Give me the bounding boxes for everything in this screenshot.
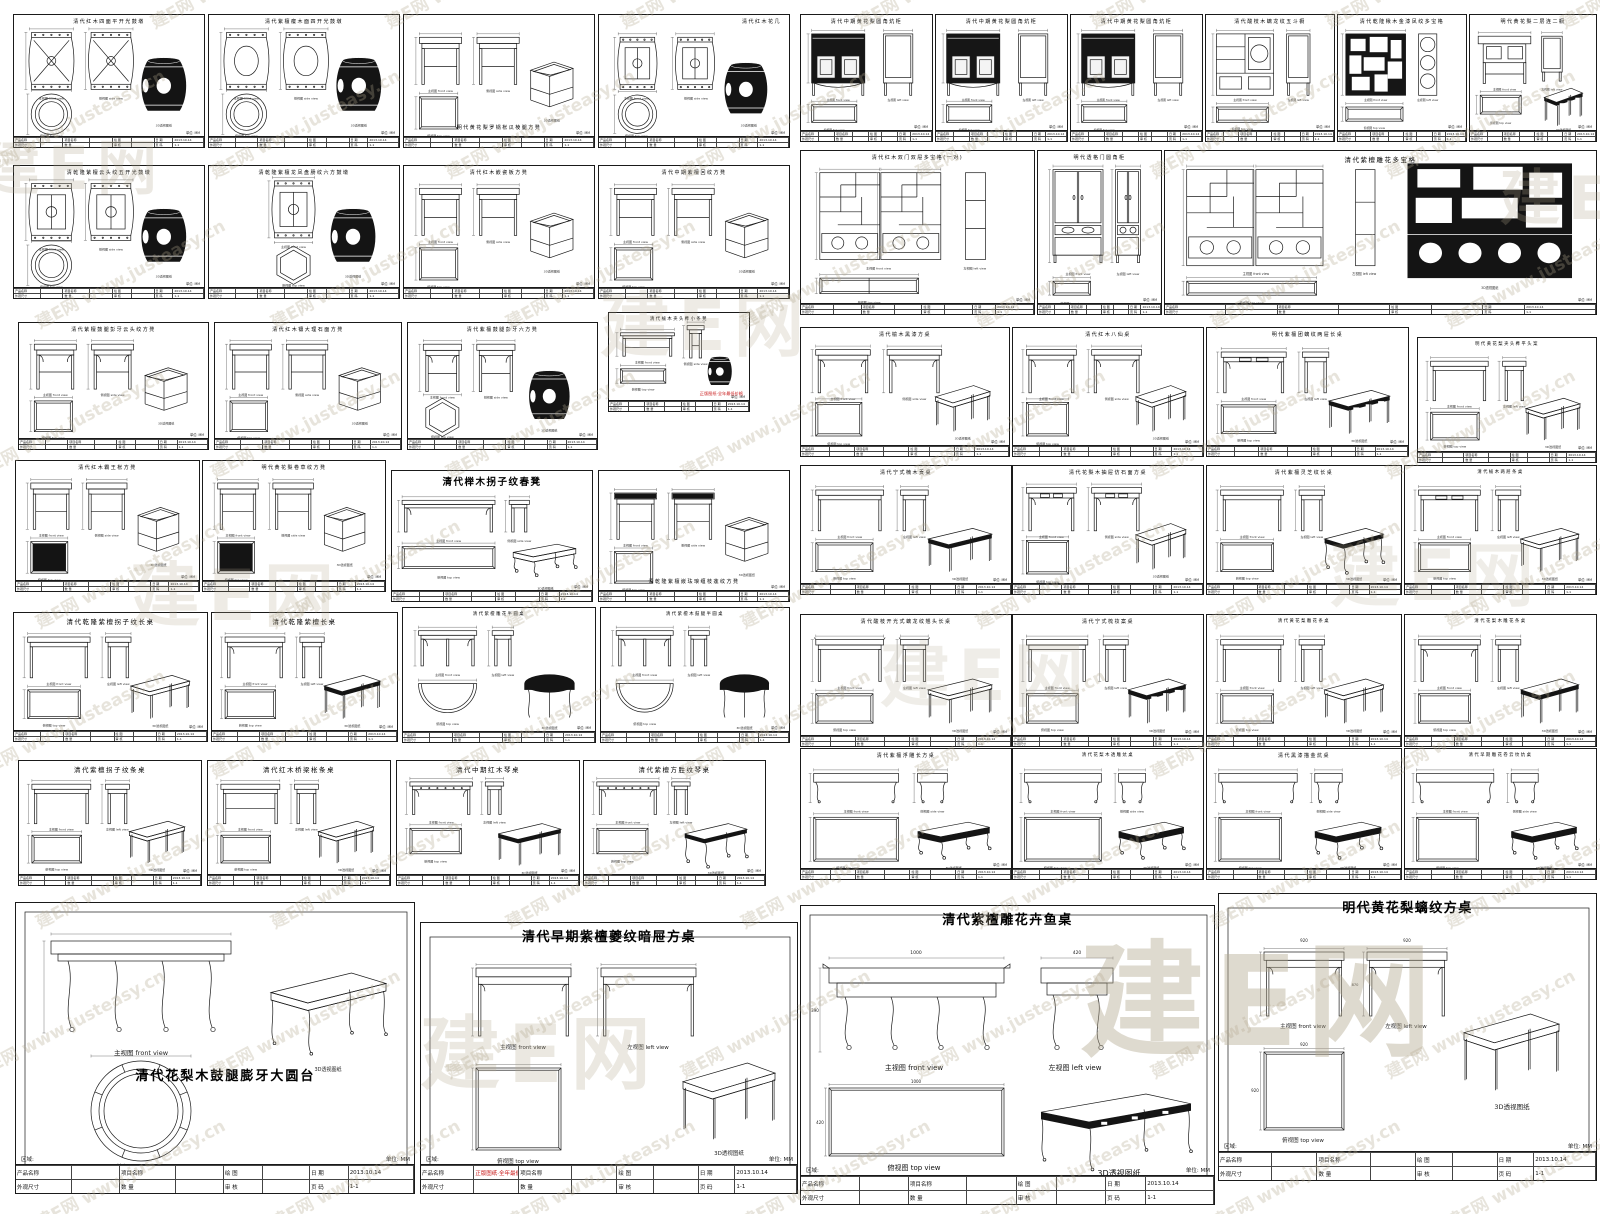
titleblock-cell (895, 309, 923, 314)
drawing-sheet: 清代花梨木透雕炕桌主视图 front view侧视图 side view俯视图 … (1012, 748, 1204, 880)
titleblock-cell (1489, 457, 1510, 462)
svg-text:主视图 front view: 主视图 front view (1246, 808, 1271, 813)
titleblock-cell: 审 核 (909, 451, 930, 456)
titleblock: 产品名称项目名称绘 图日 期2013.10.14外观尺寸数 量审 核页 码1-1 (207, 874, 391, 886)
drawing-sheet: 清代榆木夹头榫小条凳主视图 front view侧视图 side view俯视图… (608, 312, 750, 412)
svg-text:左视图 left view: 左视图 left view (1301, 685, 1324, 690)
svg-text:主视图 front view: 主视图 front view (1493, 88, 1517, 92)
titleblock-cell (860, 1176, 909, 1190)
titleblock-cell: 外观尺寸 (801, 309, 834, 314)
titleblock-cell: 数 量 (250, 586, 276, 591)
titleblock-cell: 页 码 (740, 737, 759, 742)
titleblock-cell (967, 1190, 1016, 1204)
titleblock-cell (1272, 1166, 1317, 1180)
unit-label: 单位: MM (1185, 862, 1199, 867)
svg-text:主视图 front view: 主视图 front view (1050, 808, 1075, 813)
titleblock-cell: 1-1 (1565, 589, 1596, 594)
titleblock-cell (1055, 309, 1070, 314)
titleblock-cell: 数 量 (120, 1179, 176, 1193)
titleblock-cell: 数 量 (519, 1179, 572, 1193)
titleblock-cell (1131, 451, 1154, 456)
titleblock-cell (522, 293, 545, 298)
titleblock: 产品名称项目名称绘 图日 期2013.10.14外观尺寸数 量审 核页 码1-1 (1070, 130, 1203, 142)
svg-text:俯视图 top view: 俯视图 top view (833, 575, 856, 580)
titleblock: 产品名称项目名称绘 图日 期2013.10.14外观尺寸数 量审 核页 码1-1 (1469, 130, 1597, 142)
unit-label: 单位: MM (379, 724, 393, 729)
svg-text:3D透视图纸: 3D透视图纸 (1153, 574, 1169, 579)
titleblock-cell: 数 量 (1239, 136, 1257, 141)
titleblock-cell: 项目名称 (519, 1165, 572, 1179)
svg-text:左视图 left view: 左视图 left view (888, 98, 910, 102)
titleblock-cell (834, 309, 862, 314)
titleblock-cell (1234, 874, 1257, 879)
titleblock-row: 外观尺寸数 量审 核页 码1-1 (1013, 589, 1203, 594)
titleblock-cell: 1-1 (977, 874, 1011, 879)
drawing-sheet: 明代黄花梨二层连二橱主视图 front view左视图 left view俯视图… (1469, 14, 1597, 142)
titleblock-cell: 1-1 (759, 737, 789, 742)
titleblock-cell (480, 293, 503, 298)
titleblock-cell: 外观尺寸 (1418, 457, 1443, 462)
titleblock-cell: 审 核 (1102, 309, 1114, 314)
titleblock-row: 外观尺寸数 量审 核页 码1-1 (1405, 589, 1596, 594)
titleblock-cell: 审 核 (682, 406, 696, 411)
sheet-title: 清代红木嵌瓷板方凳 (404, 169, 594, 176)
titleblock: 产品名称项目名称绘 图日 期2013.10.14外观尺寸数 量审 核页 码1-1 (800, 735, 1012, 747)
titleblock-cell: 审 核 (699, 737, 718, 742)
furniture-drawing: 920920870主视图 front view左视图 left view9209… (1219, 894, 1598, 1154)
titleblock-cell: 外观尺寸 (19, 444, 46, 449)
titleblock-cell: 审 核 (1139, 136, 1152, 141)
titleblock-cell: 1-1 (367, 736, 397, 741)
titleblock-row: 外观尺寸数 量审 核页 码1-1 (1207, 741, 1401, 746)
titleblock-cell (627, 737, 650, 742)
sheet-title: 清乾隆紫檀云头纹五开光鼓墩 (14, 169, 204, 176)
svg-text:主视图 front view: 主视图 front view (430, 395, 455, 400)
sheet-title: 清乾隆紫檀龙凤盘肠纹六方鼓墩 (209, 169, 399, 176)
titleblock-cell (1520, 136, 1535, 141)
svg-text:俯视图 top view: 俯视图 top view (1236, 727, 1259, 732)
titleblock-cell: 外观尺寸 (212, 736, 238, 741)
titleblock-cell: 数 量 (648, 293, 675, 298)
titleblock-cell: 数 量 (1062, 451, 1089, 456)
unit-label: 单位: MM (579, 432, 593, 437)
svg-text:侧视图 side view: 侧视图 side view (507, 538, 532, 543)
titleblock-cell (1226, 309, 1277, 314)
unit-label: 单位: MM (183, 868, 197, 873)
titleblock-cell: 1-1 (727, 406, 749, 411)
titleblock-cell (285, 142, 308, 147)
titleblock-cell (988, 136, 1004, 141)
titleblock-cell: 外观尺寸 (609, 406, 629, 411)
titleblock-cell: 绘 图 (1017, 1176, 1057, 1190)
titleblock-cell: 外观尺寸 (1206, 136, 1224, 141)
titleblock: 产品名称项目名称绘 图日 期2013.10.14外观尺寸数 量审 核页 码1-1 (600, 731, 790, 743)
svg-text:3D透视图纸: 3D透视图纸 (150, 562, 166, 567)
furniture-drawing: 主视图 front view左视图 left view俯视图 top view (801, 151, 1036, 306)
titleblock-cell (1089, 874, 1112, 879)
svg-text:主视图 front view: 主视图 front view (1045, 685, 1070, 690)
sheet-title: 清代紫檀浮雕长方桌 (801, 752, 1011, 759)
titleblock-cell (629, 406, 646, 411)
titleblock-cell: 外观尺寸 (1207, 589, 1234, 594)
unit-label: 单位: MM (1568, 1142, 1592, 1150)
titleblock-cell (967, 1176, 1016, 1190)
furniture-drawing: 主视图 front view侧视图 side view俯视图 top view3… (1405, 749, 1598, 871)
svg-text:左视图 left view: 左视图 left view (107, 681, 130, 686)
svg-text:俯视图 top view: 俯视图 top view (1237, 437, 1260, 442)
titleblock-cell (1285, 589, 1308, 594)
titleblock: 产品名称项目名称绘 图日 期2013.10.14外观尺寸数 量审 核页 码1-1 (202, 580, 386, 592)
titleblock-cell: 1-1 (173, 293, 204, 298)
titleblock-cell (1528, 457, 1549, 462)
svg-text:俯视图 top view: 俯视图 top view (1433, 727, 1456, 732)
titleblock-cell (853, 136, 869, 141)
unit-label: 单位: MM (181, 574, 195, 579)
svg-text:主视图 front view: 主视图 front view (1447, 404, 1472, 409)
titleblock: 产品名称项目名称绘 图日 期2013.10.14外观尺寸数 量审 核页 码1-1 (403, 287, 595, 299)
titleblock-row: 外观尺寸数 量审 核页 码1-1 (599, 142, 789, 147)
titleblock: 产品名称项目名称绘 图日 期2013.10.14外观尺寸数 量审 核页 码1-1 (800, 445, 1010, 457)
titleblock-cell: 页 码 (1129, 309, 1141, 314)
titleblock-cell: 审 核 (1272, 136, 1285, 141)
unit-label: 单位: MM (993, 577, 1007, 582)
titleblock-cell: 页 码 (1154, 874, 1173, 879)
titleblock-cell: 1-1 (758, 293, 789, 298)
svg-text:左视图 left view: 左视图 left view (301, 681, 324, 686)
svg-text:3D透视图纸: 3D透视图纸 (955, 436, 971, 441)
titleblock-cell: 外观尺寸 (1207, 451, 1235, 456)
titleblock-cell (474, 1179, 519, 1193)
svg-text:左视图 left view: 左视图 left view (627, 1043, 669, 1051)
titleblock-cell: 审 核 (922, 309, 945, 314)
titleblock-cell: 页 码 (1168, 136, 1181, 141)
sheet-title: 清代红木桥梁枨条桌 (208, 764, 390, 774)
svg-text:侧视图 side view: 侧视图 side view (295, 392, 320, 397)
drawing-sheet: 清代中期黄花梨圆角炕柜主视图 front view左视图 left view俯视… (1070, 14, 1203, 142)
titleblock-cell: 1-1 (1172, 741, 1203, 746)
svg-text:主视图 front view: 主视图 front view (1243, 271, 1270, 276)
furniture-drawing: 主视图 front view左视图 left view俯视图 top view3… (601, 608, 791, 734)
svg-text:俯视图 top view: 俯视图 top view (833, 727, 856, 732)
svg-text:侧视图 side view: 侧视图 side view (1105, 534, 1130, 539)
titleblock-cell: 1-1 (1567, 457, 1596, 462)
svg-text:左视图 left view: 左视图 left view (670, 820, 693, 825)
sheet-title: 清代花梨木透雕炕桌 (1013, 752, 1203, 758)
titleblock-row: 外观尺寸数 量审 核页 码1-1 (599, 293, 789, 298)
svg-text:3D透视图纸: 3D透视图纸 (739, 572, 755, 577)
titleblock-row: 外观尺寸数 量审 核页 码1-1 (421, 1179, 797, 1193)
titleblock-cell: 页 码 (973, 309, 996, 314)
titleblock-cell: 数 量 (1455, 589, 1482, 594)
drawing-sheet: 清代紫檀雕花半圆桌主视图 front view左视图 left view俯视图 … (402, 607, 596, 743)
svg-text:左视图 left view: 左视图 left view (903, 685, 926, 690)
titleblock-cell: 数 量 (1258, 741, 1285, 746)
titleblock-cell (954, 136, 970, 141)
furniture-drawing: 主视图 front view左视图 left view俯视图 top view3… (801, 466, 1013, 586)
titleblock-cell (1234, 741, 1257, 746)
titleblock: 产品名称项目名称绘 图日 期2013.10.14外观尺寸数 量审 核页 码1-1 (1206, 583, 1402, 595)
titleblock-cell: 审 核 (1535, 136, 1548, 141)
svg-text:主视图 front view: 主视图 front view (238, 827, 263, 832)
svg-text:左视图 left view: 左视图 left view (1049, 1063, 1102, 1072)
titleblock-row: 外观尺寸数 量审 核页 码1-1 (1470, 136, 1596, 141)
svg-text:1000: 1000 (911, 1079, 922, 1084)
titleblock: 产品名称项目名称绘 图日 期2013.10.14外观尺寸数 量审 核页 码1-1 (1218, 1151, 1597, 1181)
titleblock: 产品名称项目名称绘 图日 期2013.10.14外观尺寸数 量审 核页 码1-1 (208, 287, 400, 299)
unit-label: 单位: MM (993, 729, 1007, 734)
titleblock-cell (89, 586, 111, 591)
drawing-sheet: 清代紫檀雕花卉鱼桌1000390420主视图 front view左视图 lef… (800, 905, 1215, 1205)
titleblock-cell: 2013.10.14 (735, 1165, 797, 1179)
titleblock-cell: 审 核 (1511, 457, 1529, 462)
titleblock-cell: 页 码 (1033, 136, 1046, 141)
svg-text:侧视图 side view: 侧视图 side view (281, 533, 306, 538)
titleblock-cell: 绘 图 (1416, 1152, 1453, 1166)
furniture-drawing: 主视图 front view左视图 left view俯视图 top view3… (801, 615, 1013, 738)
drawing-sheet: 清代早期紫檀夔纹暗屉方桌主视图 front view左视图 left view俯… (420, 922, 798, 1194)
drawing-sheet: 清代中期黄花梨圆角炕柜主视图 front view左视图 left view俯视… (800, 14, 933, 142)
titleblock-cell (1057, 1190, 1106, 1204)
furniture-drawing: 主视图 front view侧视图 side view俯视图 top view3… (1013, 328, 1205, 448)
titleblock-cell: 审 核 (308, 293, 327, 298)
titleblock-row: 外观尺寸数 量审 核页 码1-1 (1013, 741, 1203, 746)
titleblock-cell: 审 核 (1308, 589, 1327, 594)
titleblock: 产品名称项目名称绘 图日 期2013.10.14外观尺寸数 量审 核页 码1-1 (403, 136, 595, 148)
titleblock-cell: 页 码 (1483, 309, 1525, 314)
titleblock-cell: 1-1 (172, 880, 201, 885)
svg-text:3D透视图纸: 3D透视图纸 (1542, 576, 1558, 581)
titleblock-cell: 外观尺寸 (1405, 741, 1432, 746)
sheet-title: 清代花梨木抽屉仿石面方桌 (1013, 469, 1203, 476)
titleblock: 产品名称项目名称绘 图日 期2013.10.14外观尺寸数 量审 核页 码1-1 (1417, 451, 1597, 463)
titleblock-cell (675, 142, 698, 147)
titleblock-cell (1327, 741, 1350, 746)
titleblock-cell (1131, 741, 1154, 746)
titleblock-cell: 外观尺寸 (1038, 309, 1055, 314)
titleblock-cell: 外观尺寸 (1470, 136, 1488, 141)
sheet-title: 清代中期紫檀回纹方凳 (599, 169, 789, 176)
titleblock-row: 外观尺寸数 量审 核页 码1-1 (1038, 309, 1161, 314)
titleblock-cell (522, 142, 545, 147)
furniture-drawing: 主视图 front view左视图 left view俯视图 top view3… (421, 923, 799, 1167)
sheet-title: 清代榆木两屉条桌 (1405, 469, 1596, 475)
titleblock: 产品名称项目名称绘 图日 期2013.10.14外观尺寸数 量审 核页 码1-1 (1206, 445, 1409, 457)
unit-label: 单位: MM (381, 130, 395, 135)
titleblock-cell: 数 量 (64, 736, 91, 741)
titleblock-row: 外观尺寸数 量审 核页 码1-1 (584, 880, 765, 885)
titleblock-cell: 绘 图 (224, 1165, 263, 1179)
drawing-sheet: 清代红木四面平开光鼓墩主视图 front view侧视图 side view俯视… (13, 14, 205, 148)
titleblock-cell (696, 406, 713, 411)
titleblock: 产品名称项目名称绘 图日 期2013.10.14外观尺寸数 量审 核页 码1-1 (1164, 303, 1597, 315)
titleblock-cell (1235, 451, 1259, 456)
titleblock-cell (132, 142, 155, 147)
titleblock-cell: 外观尺寸 (215, 444, 241, 449)
unit-label: 单位: MM (386, 1155, 410, 1163)
svg-text:主视图 front view: 主视图 front view (500, 1043, 546, 1051)
titleblock-cell (1234, 589, 1257, 594)
titleblock-cell (885, 741, 910, 746)
titleblock-cell: 项目名称 (1317, 1152, 1370, 1166)
svg-text:主视图 front view: 主视图 front view (827, 98, 851, 102)
titleblock-cell: 数 量 (453, 737, 480, 742)
svg-text:主视图 front view: 主视图 front view (1097, 98, 1121, 102)
sheet-title: 清代花梨木雕花条桌 (1405, 618, 1596, 624)
titleblock: 产品名称项目名称绘 图日 期2013.10.14外观尺寸数 量审 核页 码1-1 (1205, 130, 1335, 142)
titleblock-cell: 外观尺寸 (16, 586, 42, 591)
titleblock-cell: 外观尺寸 (14, 142, 41, 147)
furniture-drawing: 主视图 front view左视图 left view俯视图 top view3… (1470, 15, 1598, 133)
drawing-sheet: 清代紫檀拐子纹条桌主视图 front view左视图 left view俯视图 … (18, 760, 202, 886)
titleblock-cell: 数 量 (1062, 741, 1089, 746)
titleblock-cell: 1-1 (349, 1179, 414, 1193)
svg-text:侧视图 side view: 侧视图 side view (1120, 808, 1145, 813)
titleblock-cell (92, 880, 114, 885)
furniture-drawing: 主视图 front view侧视图 side view俯视图 top view3… (1013, 749, 1205, 871)
titleblock-cell: 页 码 (310, 1179, 349, 1193)
titleblock-cell: 页 码 (343, 880, 361, 885)
titleblock: 产品名称项目名称绘 图日 期2013.10.14外观尺寸数 量审 核页 码1-1 (1404, 583, 1597, 595)
furniture-drawing: 主视图 front view侧视图 side view俯视图 top view3… (1013, 466, 1205, 586)
furniture-drawing: 主视图 front view侧视图 side view俯视图 top view3… (14, 166, 206, 290)
furniture-drawing: 主视图 front view左视图 left view俯视图 top view3… (1405, 466, 1598, 586)
titleblock-cell (1040, 589, 1063, 594)
titleblock-cell (132, 293, 155, 298)
svg-text:主视图 front view: 主视图 front view (49, 827, 74, 832)
furniture-drawing: 主视图 front view左视图 left view俯视图 top view3… (403, 608, 597, 734)
titleblock-cell: 审 核 (698, 142, 717, 147)
titleblock-cell: 1-1 (911, 136, 932, 141)
titleblock: 产品名称项目名称绘 图日 期2013.10.14外观尺寸数 量审 核页 码1-1 (1012, 868, 1204, 880)
svg-text:主视图 front view: 主视图 front view (1039, 396, 1064, 401)
titleblock: 产品名称项目名称绘 图日 期2013.10.14外观尺寸数 量审 核页 码1-1 (15, 580, 200, 592)
drawing-sheet: 清代酸枝木螭龙纹五斗橱主视图 front view左视图 left view俯视… (1205, 14, 1335, 142)
svg-text:侧视图 side view: 侧视图 side view (486, 239, 511, 244)
titleblock: 产品名称项目名称绘 图日 期2013.10.14外观尺寸数 量审 核页 码1-1 (1206, 868, 1402, 880)
drawing-sheet: 清代紫檀浮雕长方桌主视图 front view侧视图 side view俯视图 … (800, 748, 1012, 880)
titleblock: 产品名称项目名称绘 图日 期2013.10.14外观尺寸数 量审 核页 码1-1 (13, 287, 205, 299)
titleblock-cell: 审 核 (1504, 741, 1523, 746)
svg-text:侧视图 side view: 侧视图 side view (681, 543, 706, 548)
titleblock-cell: 1-1 (1376, 451, 1409, 456)
furniture-drawing: 主视图 front view侧视图 side view俯视图 top view3… (599, 166, 791, 290)
titleblock-cell: 审 核 (1112, 741, 1131, 746)
titleblock-cell: 1-1 (996, 309, 1034, 314)
svg-text:3D透视图纸: 3D透视图纸 (351, 123, 367, 128)
titleblock-cell: 页 码 (1546, 589, 1565, 594)
furniture-drawing: 主视图 front view侧视图 side view俯视图 top view3… (209, 15, 401, 139)
titleblock-cell (1453, 1166, 1498, 1180)
unit-label: 单位: MM (372, 868, 386, 873)
svg-text:3D透视图纸: 3D透视图纸 (1346, 576, 1362, 581)
furniture-drawing: 主视图 front view左视图 left view俯视图 top view3… (1207, 466, 1403, 586)
svg-text:左视图 left view: 左视图 left view (964, 266, 987, 271)
titleblock-cell: 1-1 (1314, 136, 1334, 141)
titleblock: 产品名称项目名称绘 图日 期2013.10.14外观尺寸数 量审 核页 码1-1 (1404, 868, 1597, 880)
titleblock-cell: 页 码 (338, 586, 356, 591)
titleblock-cell: 1-1 (975, 451, 1009, 456)
sheet-title: 明代透格门圆角柜 (1038, 154, 1161, 161)
svg-text:主视图 front view: 主视图 front view (1039, 534, 1064, 539)
cad-furniture-montage: 清代红木四面平开光鼓墩主视图 front view侧视图 side view俯视… (0, 0, 1600, 1214)
titleblock-cell: 1-1 (1141, 309, 1161, 314)
furniture-drawing: 主视图 front view左视图 left view俯视图 top view (1071, 15, 1204, 133)
titleblock-cell: 页 码 (157, 736, 176, 741)
titleblock-cell (327, 142, 350, 147)
unit-label: 单位: MM (1578, 729, 1592, 734)
furniture-drawing: 主视图 front view侧视图 side view俯视图 top view3… (203, 461, 387, 583)
unit-label: 单位: MM (1184, 124, 1198, 129)
titleblock-cell: 1-1 (550, 880, 579, 885)
drawing-sheet: 清代花梨木雕花条桌主视图 front view左视图 left view俯视图 … (1404, 614, 1597, 747)
titleblock-row: 外观尺寸数 量审 核页 码1-1 (1207, 874, 1401, 879)
titleblock-cell: 审 核 (503, 142, 522, 147)
titleblock-cell: 数 量 (1062, 874, 1089, 879)
titleblock-cell: 审 核 (1416, 1166, 1453, 1180)
svg-text:侧视图 side view: 侧视图 side view (684, 95, 709, 100)
titleblock-cell: 外观尺寸 (408, 444, 435, 449)
svg-text:3D透视图纸: 3D透视图纸 (156, 274, 172, 279)
drawing-sheet: 清代紫檀方胜纹琴桌主视图 front view左视图 left view俯视图 … (583, 760, 766, 886)
svg-text:3D透视图纸: 3D透视图纸 (338, 867, 354, 872)
sheet-title: 清代榆木黑漆方桌 (801, 331, 1009, 338)
titleblock-cell: 页 码 (956, 589, 977, 594)
titleblock-cell: 数 量 (645, 406, 665, 411)
titleblock-row: 外观尺寸数 量审 核页 码1-1 (1207, 451, 1408, 456)
furniture-drawing: 主视图 front view侧视图 side view俯视图 top view3… (16, 461, 201, 583)
titleblock-cell (480, 737, 503, 742)
svg-text:侧视图 side view: 侧视图 side view (101, 392, 126, 397)
titleblock-cell: 页 码 (1498, 1166, 1535, 1180)
titleblock-cell: 审 核 (910, 589, 931, 594)
titleblock: 产品名称项目名称绘 图日 期2013.10.14外观尺寸数 量审 核页 码1-1 (1012, 735, 1204, 747)
titleblock-row: 外观尺寸数 量审 核页 码1-1 (16, 586, 199, 591)
titleblock-cell: 审 核 (910, 741, 931, 746)
svg-text:主视图 front view: 主视图 front view (1280, 1022, 1326, 1030)
svg-text:420: 420 (816, 1120, 824, 1125)
titleblock-row: 产品名称正版图纸·全年最低价格项目名称绘 图日 期2013.10.14 (421, 1165, 797, 1179)
titleblock-cell: 页 码 (740, 293, 759, 298)
titleblock-cell (276, 586, 298, 591)
titleblock-row: 外观尺寸数 量审 核页 码1-1 (404, 142, 594, 147)
svg-text:3D透视图纸: 3D透视图纸 (736, 725, 752, 730)
svg-text:俯视图 top view: 俯视图 top view (1282, 1136, 1324, 1144)
titleblock-row: 外观尺寸数 量审 核页 码1-1 (1405, 741, 1596, 746)
titleblock-cell: 审 核 (115, 736, 134, 741)
titleblock-cell: 审 核 (910, 874, 931, 879)
titleblock-cell: 1-1 (1046, 136, 1067, 141)
svg-text:3D透视图纸: 3D透视图纸 (1542, 728, 1558, 733)
titleblock-cell: 1-1 (361, 880, 390, 885)
titleblock-cell: 外观尺寸 (1219, 1166, 1272, 1180)
titleblock-cell: 外观尺寸 (1071, 136, 1089, 141)
titleblock-cell: 1-1 (1525, 309, 1596, 314)
unit-label: 单位: MM (577, 725, 591, 730)
titleblock-cell: 外观尺寸 (16, 1179, 72, 1193)
titleblock-cell (1488, 136, 1503, 141)
titleblock: 产品名称项目名称绘 图日 期2013.10.14外观尺寸数 量审 核页 码1-1 (1206, 735, 1402, 747)
titleblock-cell: 数 量 (648, 142, 675, 147)
svg-text:3D透视图纸: 3D透视图纸 (345, 274, 361, 279)
drawing-sheet: 清乾隆紫檀云头纹五开光鼓墩主视图 front view侧视图 side view… (13, 165, 205, 299)
drawing-sheet: 明代黄花梨罗锅枨瓜棱腿方凳主视图 front view侧视图 side view… (403, 14, 595, 148)
svg-text:3D透视图纸: 3D透视图纸 (952, 576, 968, 581)
furniture-drawing: 主视图 front view侧视图 side view俯视图 top view3… (408, 323, 599, 441)
titleblock-cell: 外观尺寸 (801, 741, 831, 746)
furniture-drawing: 主视图 front view侧视图 side view俯视图 top view3… (404, 166, 596, 290)
titleblock-cell (263, 1179, 311, 1193)
titleblock-row: 产品名称项目名称绘 图日 期2013.10.14 (16, 1165, 414, 1179)
